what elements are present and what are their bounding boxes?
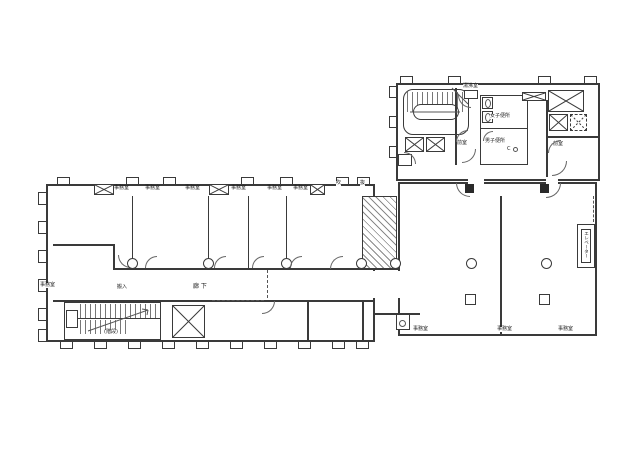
womens-toilet-label: 女子便所 [490, 114, 510, 119]
elevator-shaft [549, 114, 568, 131]
cleaner-sink-label: C [507, 147, 511, 152]
office-label: 事務室 [497, 327, 512, 332]
stair-rail [78, 318, 160, 319]
stairs-label: (階段) [104, 330, 118, 335]
office-label: 事務室 [413, 327, 428, 332]
partition-wall [307, 302, 309, 342]
partition-wall [362, 302, 364, 342]
floor-plan-canvas: 湯沸室 女子便所 男子便所 C 前室 前室 事務 [0, 0, 640, 452]
wall-segment [480, 128, 528, 129]
toilet-fixture [485, 99, 491, 108]
right-wing [398, 182, 597, 336]
void-label-right: 抜 [360, 181, 365, 186]
partition-wall [500, 196, 502, 336]
office-label: 事務室 [114, 186, 129, 191]
hatch-shaft [570, 114, 587, 131]
column-stub [264, 341, 277, 349]
dashed-opening [267, 270, 268, 298]
stair-landing [413, 104, 459, 120]
wall-segment [113, 244, 115, 270]
office-label: 事務室 [145, 186, 160, 191]
square-column-filled [465, 184, 474, 193]
round-column [390, 258, 401, 269]
round-column [203, 258, 214, 269]
column-stub [128, 341, 141, 349]
duct-shaft [310, 184, 325, 195]
office-label: 事務室 [558, 327, 573, 332]
round-column [127, 258, 138, 269]
square-column-filled [540, 184, 549, 193]
column-stub [230, 341, 243, 349]
square-column [539, 294, 550, 305]
wall-segment [53, 244, 115, 246]
vent-shaft [522, 92, 546, 101]
corridor-pass-gap [371, 271, 377, 298]
column-stub [356, 341, 369, 349]
side-elevator-label: エレベーター [583, 231, 588, 258]
office-label: 事務室 [267, 186, 282, 191]
corridor-pass-gap [396, 271, 402, 298]
duct-shaft [94, 184, 114, 195]
wall-segment [546, 136, 600, 138]
stair-landing [66, 310, 78, 328]
dashed-opening [212, 300, 264, 301]
round-column [466, 258, 477, 269]
duct-shaft [209, 184, 229, 195]
elevator-shaft [172, 305, 205, 338]
office-label: 事務室 [231, 186, 246, 191]
round-column [356, 258, 367, 269]
fixture-circle [399, 320, 406, 327]
office-label: 事務室 [185, 186, 200, 191]
corridor-label: 廊 下 [193, 284, 207, 290]
square-column [465, 294, 476, 305]
round-column [541, 258, 552, 269]
doorway-gap [468, 177, 484, 184]
kettle-room-label: 湯沸室 [463, 84, 478, 89]
column-stub [60, 341, 73, 349]
wall-segment [546, 100, 548, 181]
stair-treads [80, 320, 126, 334]
sink-fixture [513, 147, 518, 152]
column-stub [94, 341, 107, 349]
column-stub [196, 341, 209, 349]
wall-segment [455, 88, 457, 165]
column-stub [162, 341, 175, 349]
office-label: 事務室 [293, 186, 308, 191]
stair-treads [80, 304, 158, 318]
elevator-shaft [426, 137, 445, 152]
partition-wall [248, 196, 249, 268]
machine-shaft [548, 90, 584, 112]
column-stub [298, 341, 311, 349]
corridor-wall-top [115, 268, 398, 270]
delivery-label: 搬入 [117, 285, 127, 290]
column-stub [332, 341, 345, 349]
void-label-left: 吹 [336, 181, 341, 186]
left-office-label: 事務室 [40, 283, 55, 288]
elevator-shaft [405, 137, 424, 152]
dashed-opening [593, 196, 594, 222]
